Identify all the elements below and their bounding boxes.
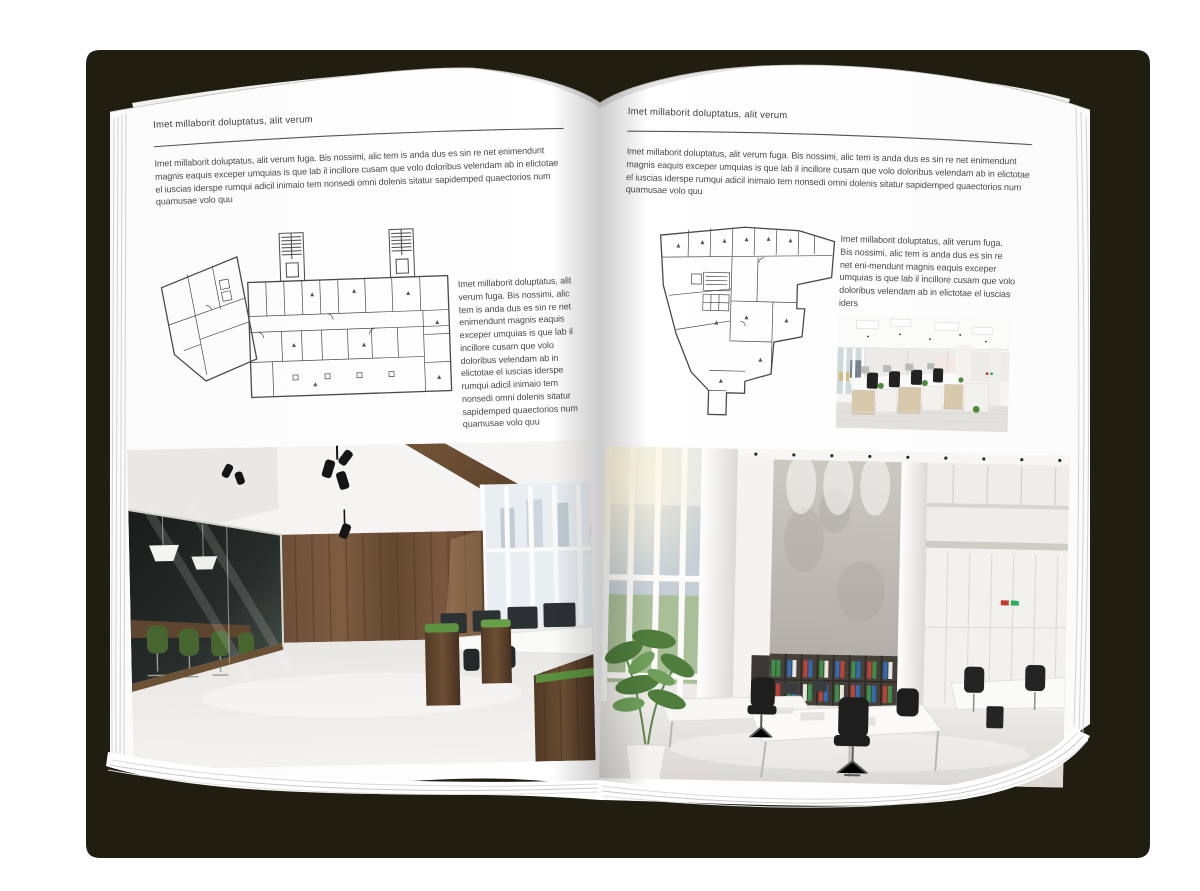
intro-paragraph: Imet millaborit doluptatus, alit verum f… (626, 145, 1035, 207)
brochure-mockup-scene: Imet millaborit doluptatus, alit verum I… (0, 0, 1200, 891)
floor-plan-left (158, 213, 456, 411)
plan-caption: Imet millaborit doluptatus, alit verum f… (839, 233, 1017, 314)
floor-plan-right (642, 219, 843, 424)
small-office-photo (836, 314, 1011, 432)
right-page: Imet millaborit doluptatus, alit verum I… (611, 106, 1046, 537)
page-stack-left-edge (112, 113, 126, 761)
plan-caption: Imet millaborit doluptatus, alit verum f… (458, 274, 579, 431)
left-page: Imet millaborit doluptatus, alit verum I… (146, 105, 584, 519)
page-stack-right-edge (1074, 108, 1089, 732)
header-rule (627, 126, 1034, 147)
page-title: Imet millaborit doluptatus, alit verum (628, 106, 1046, 128)
